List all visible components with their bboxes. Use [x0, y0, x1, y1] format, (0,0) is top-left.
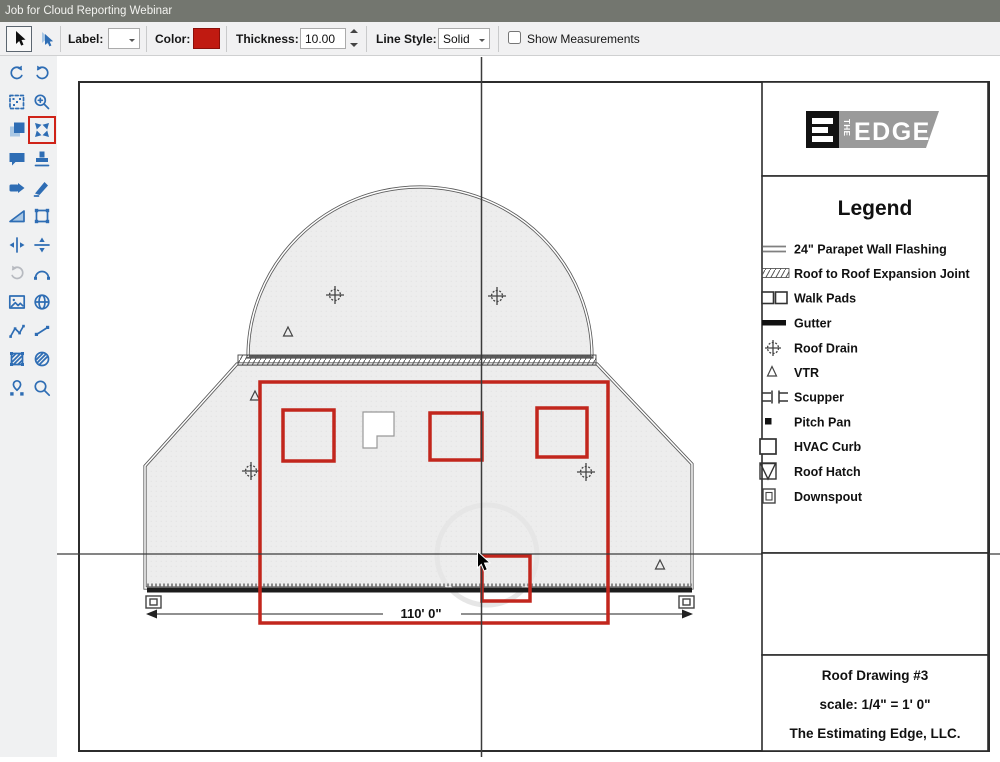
legend-title: Legend [838, 197, 913, 220]
spinner-down-icon[interactable] [350, 43, 358, 47]
company-name: The Estimating Edge, LLC. [789, 726, 960, 741]
line-style-label: Line Style: [376, 32, 437, 46]
show-measurements-label: Show Measurements [527, 32, 640, 46]
dimension-label: 110' 0" [400, 606, 441, 621]
toolbar-separator [60, 26, 61, 52]
hatch-area-button[interactable] [5, 347, 29, 371]
rectangle-tool-icon [32, 206, 52, 226]
window-title: Job for Cloud Reporting Webinar [5, 5, 172, 17]
cursor-icon [9, 29, 29, 49]
legend-item: HVAC Curb [760, 439, 861, 454]
square-symbol [760, 439, 776, 454]
filled-square-symbol [765, 418, 772, 425]
toolbar: Label: Color: Thickness: 10.00 Line Styl… [0, 22, 1000, 56]
segment-button[interactable] [30, 319, 54, 343]
repeat-disabled-icon [7, 263, 27, 283]
spinner-up-icon[interactable] [350, 29, 358, 33]
texture-icon [32, 349, 52, 369]
tag-button[interactable] [5, 176, 29, 200]
comment-button[interactable] [5, 147, 29, 171]
segment-icon [32, 321, 52, 341]
thickness-input[interactable]: 10.00 [300, 28, 346, 49]
show-measurements-checkbox[interactable] [508, 31, 521, 44]
chevron-down-icon [129, 39, 135, 45]
spray-button[interactable] [30, 176, 54, 200]
drawing-title: Roof Drawing #3 [822, 668, 929, 683]
window-title-bar[interactable]: Job for Cloud Reporting Webinar [0, 0, 1000, 22]
comment-icon [7, 149, 27, 169]
texture-button[interactable] [30, 347, 54, 371]
select-tool-button[interactable] [6, 26, 32, 52]
split-vertical-icon [7, 235, 27, 255]
color-swatch-button[interactable] [193, 28, 220, 49]
multi-select-tool-button[interactable] [34, 26, 60, 52]
svg-text:Roof Hatch: Roof Hatch [794, 465, 861, 479]
tool-sidebar [0, 56, 57, 757]
spray-icon [32, 178, 52, 198]
fit-extents-icon [32, 120, 52, 140]
zoom-window-button[interactable] [30, 90, 54, 114]
downspout-right [679, 596, 694, 608]
stamp-button[interactable] [30, 147, 54, 171]
layers-button[interactable] [5, 118, 29, 142]
repeat-button [5, 261, 29, 285]
multi-cursor-icon [37, 29, 57, 49]
image-icon [7, 292, 27, 312]
polyline-button[interactable] [5, 319, 29, 343]
slope-button[interactable] [5, 204, 29, 228]
downspout-left [146, 596, 161, 608]
svg-text:Gutter: Gutter [794, 317, 832, 331]
expansion-joint [238, 355, 596, 365]
arc-tool-icon [32, 263, 52, 283]
thickness-value: 10.00 [305, 32, 335, 46]
empty-box [762, 553, 988, 655]
label-dropdown[interactable] [108, 28, 140, 49]
edge-logo: THE EDGE [806, 111, 939, 148]
undo-button[interactable] [5, 61, 29, 85]
split-horizontal-icon [32, 235, 52, 255]
svg-text:Walk Pads: Walk Pads [794, 292, 856, 306]
legend-item: Walk Pads [762, 292, 856, 306]
svg-text:HVAC Curb: HVAC Curb [794, 440, 861, 454]
logo-the: THE [842, 119, 851, 137]
fit-extents-button[interactable] [30, 118, 54, 142]
thick-line-symbol [762, 320, 786, 326]
toolbar-separator [226, 26, 227, 52]
polyline-icon [7, 321, 27, 341]
toolbar-separator [146, 26, 147, 52]
globe-button[interactable] [30, 290, 54, 314]
svg-text:24" Parapet Wall Flashing: 24" Parapet Wall Flashing [794, 243, 947, 257]
svg-text:Pitch Pan: Pitch Pan [794, 416, 851, 430]
svg-text:Roof Drain: Roof Drain [794, 342, 858, 356]
pin-map-button[interactable] [5, 376, 29, 400]
svg-text:VTR: VTR [794, 366, 819, 380]
image-button[interactable] [5, 290, 29, 314]
redo-button[interactable] [30, 61, 54, 85]
rectangle-button[interactable] [30, 204, 54, 228]
toolbar-separator [498, 26, 499, 52]
zoom-window-icon [32, 92, 52, 112]
drawing-scale: scale: 1/4" = 1' 0" [820, 697, 931, 712]
marquee-select-icon [7, 92, 27, 112]
split-vertical-button[interactable] [5, 233, 29, 257]
arc-button[interactable] [30, 261, 54, 285]
search-button[interactable] [30, 376, 54, 400]
color-label: Color: [155, 32, 190, 46]
line-style-dropdown[interactable]: Solid [438, 28, 490, 49]
pin-map-icon [7, 378, 27, 398]
svg-text:Scupper: Scupper [794, 391, 844, 405]
hatch-strip-symbol [762, 269, 789, 278]
svg-text:Downspout: Downspout [794, 490, 863, 504]
line-style-value: Solid [443, 32, 470, 46]
tag-icon [7, 178, 27, 198]
legend-item: Roof to Roof Expansion Joint [762, 267, 971, 281]
undo-icon [7, 63, 27, 83]
drawing-canvas[interactable]: 110' 0" THE EDGE Legend 24" Parapet Wall… [57, 56, 1000, 757]
thickness-label: Thickness: [236, 32, 299, 46]
slope-icon [7, 206, 27, 226]
thickness-stepper[interactable] [350, 29, 358, 47]
chevron-down-icon [479, 39, 485, 45]
layers-icon [7, 120, 27, 140]
redo-icon [32, 63, 52, 83]
marquee-select-button[interactable] [5, 90, 29, 114]
stamp-icon [32, 149, 52, 169]
toolbar-separator [366, 26, 367, 52]
globe-icon [32, 292, 52, 312]
logo-edge: EDGE [854, 118, 931, 146]
search-icon [32, 378, 52, 398]
split-horizontal-button[interactable] [30, 233, 54, 257]
hatch-area-icon [7, 349, 27, 369]
svg-text:Roof to Roof Expansion Joint: Roof to Roof Expansion Joint [794, 267, 971, 281]
label-label: Label: [68, 32, 103, 46]
